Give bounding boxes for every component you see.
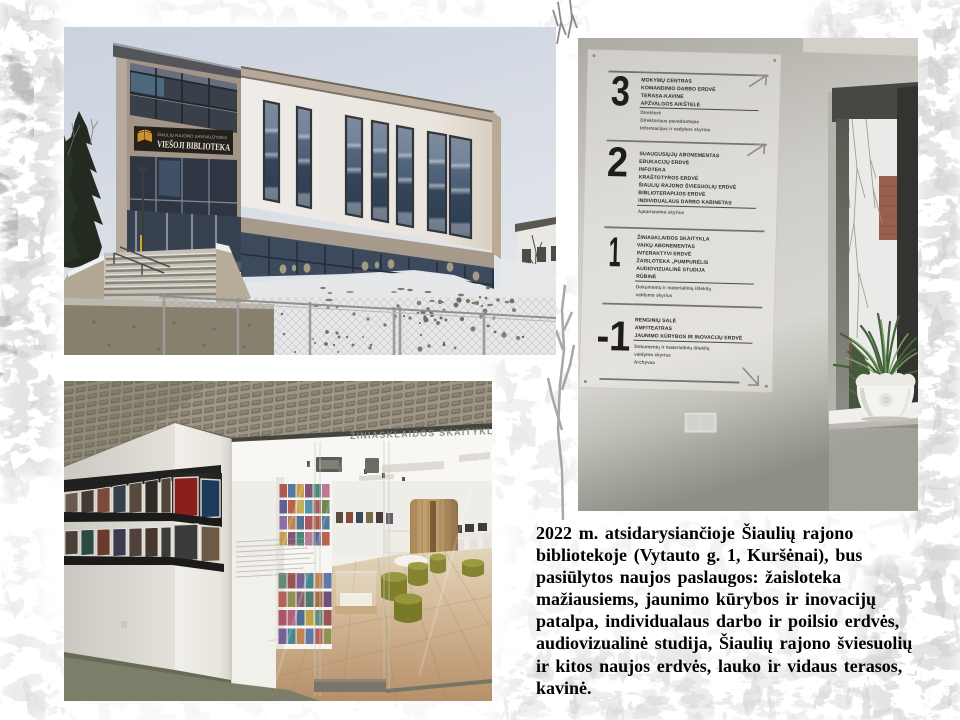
svg-text:AMFITEATRAS: AMFITEATRAS bbox=[635, 325, 673, 332]
svg-text:-1: -1 bbox=[596, 312, 631, 360]
svg-text:2: 2 bbox=[607, 138, 629, 186]
svg-text:valdymo skyrius: valdymo skyrius bbox=[636, 292, 673, 298]
svg-text:EDUKACIJŲ ERDVĖ: EDUKACIJŲ ERDVĖ bbox=[639, 158, 690, 166]
svg-text:RŪBINĖ: RŪBINĖ bbox=[636, 273, 657, 281]
svg-text:valdymo skyrius: valdymo skyrius bbox=[634, 352, 671, 358]
svg-text:Archyvas: Archyvas bbox=[634, 360, 656, 366]
svg-text:RENGINIŲ SALĖ: RENGINIŲ SALĖ bbox=[635, 316, 677, 324]
svg-text:Direktorė: Direktorė bbox=[640, 110, 661, 116]
svg-text:INTERAKTYVI ERDVĖ: INTERAKTYVI ERDVĖ bbox=[637, 249, 692, 257]
svg-text:TERASA-KAVINĖ: TERASA-KAVINĖ bbox=[641, 92, 684, 100]
svg-text:INFOTEKA: INFOTEKA bbox=[639, 167, 666, 174]
svg-text:3: 3 bbox=[610, 67, 630, 114]
svg-text:1: 1 bbox=[608, 228, 621, 275]
